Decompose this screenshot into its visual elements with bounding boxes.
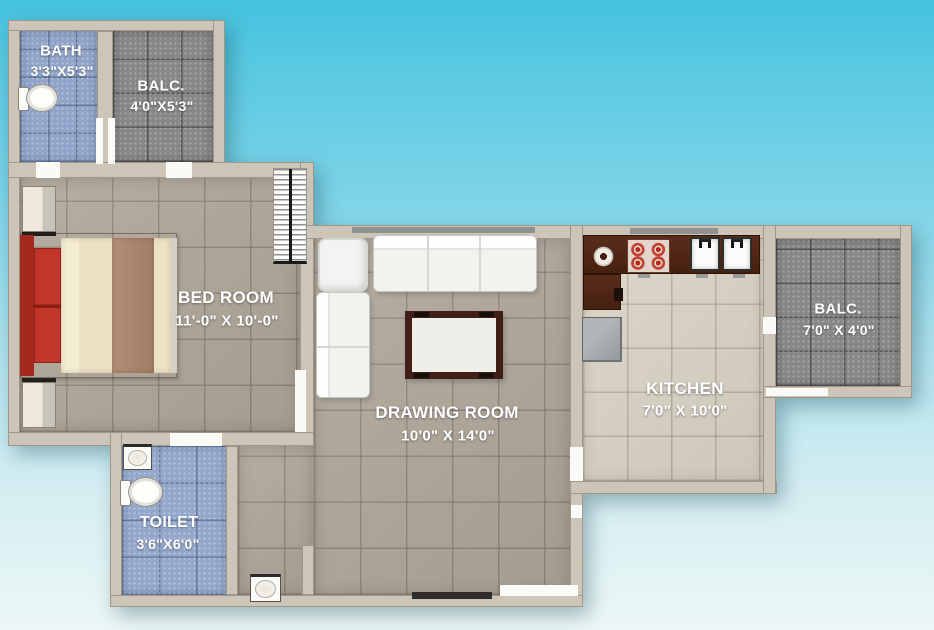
kitchen-door-opening <box>570 447 583 481</box>
balcony-top-door-leaf <box>108 118 115 164</box>
bed-blanket-stripe <box>112 238 154 373</box>
bath-door-opening <box>36 162 60 178</box>
toilet-dims: 3'6"X6'0" <box>136 536 199 552</box>
bath-toilet-icon <box>18 84 58 112</box>
loveseat-icon <box>316 292 370 398</box>
drawing-room-window <box>352 227 535 233</box>
drawing-room-side-window <box>571 505 582 518</box>
wall-bottom <box>110 595 583 607</box>
sofa-long-icon <box>373 235 537 292</box>
basin-bowl <box>255 580 276 598</box>
wall-bedroom-bottom <box>8 432 314 446</box>
balcony-right-rail-opening <box>766 388 828 396</box>
drawing-room-dims: 10'0" X 14'0" <box>401 428 495 445</box>
entrance-opening <box>500 585 578 596</box>
wall-kitchen-divider <box>570 225 583 607</box>
wall-kitchen-bottom <box>570 481 777 494</box>
bed-footboard <box>171 238 177 373</box>
bed-runner <box>34 248 61 363</box>
table-corner <box>414 373 429 378</box>
bedroom-dims: 11'-0" X 10'-0" <box>175 313 278 330</box>
kitchen-dims: 7'0" X 10'0" <box>642 403 727 420</box>
balcony-right-door-opening <box>763 317 776 334</box>
toilet-wc-icon <box>120 477 163 507</box>
toilet-bowl <box>26 84 58 112</box>
wall-top-left-block-right <box>213 20 225 178</box>
table-corner <box>479 312 494 317</box>
coffee-table-icon <box>405 311 503 379</box>
table-corner <box>414 312 429 317</box>
cabinet-handle <box>638 274 650 278</box>
bedroom-label: BED ROOM <box>178 288 274 308</box>
counter-notch <box>614 288 623 301</box>
washbasin-icon <box>123 444 152 470</box>
bedroom-door-opening <box>295 370 306 432</box>
counter-round-sink-icon <box>593 246 614 267</box>
passage-washbasin-icon <box>250 574 281 602</box>
wall-toilet-left <box>110 432 122 607</box>
balcony-top-dims: 4'0"X5'3" <box>130 98 193 114</box>
wardrobe-door-split <box>289 169 292 261</box>
kitchen-sink-icon <box>690 237 720 271</box>
wardrobe-icon <box>273 168 307 264</box>
wall-balcony-right-outer <box>900 225 912 398</box>
bath-label: BATH <box>40 43 82 60</box>
floor-plan-scene: BATH 3'3"X5'3" BALC. 4'0"X5'3" BED ROOM … <box>0 0 934 630</box>
nightstand-bottom-icon <box>22 378 56 428</box>
kitchen-label: KITCHEN <box>646 379 724 399</box>
entrance-door-icon <box>412 592 492 599</box>
refrigerator-icon <box>582 317 622 362</box>
balcony-top-door-opening <box>166 162 192 178</box>
bath-dims: 3'3"X5'3" <box>30 63 93 79</box>
bath-door-leaf <box>96 118 103 164</box>
balcony-right-label: BALC. <box>814 301 861 318</box>
wall-toilet-right <box>226 446 238 595</box>
wall-top-left-block-top <box>8 20 225 31</box>
kitchen-sink-icon <box>722 237 752 271</box>
floor-plan: BATH 3'3"X5'3" BALC. 4'0"X5'3" BED ROOM … <box>0 0 934 630</box>
double-bed-icon <box>20 233 177 378</box>
armchair-icon <box>318 238 368 292</box>
drawing-room-label: DRAWING ROOM <box>375 403 518 423</box>
toilet-bowl <box>128 477 163 507</box>
bed-headboard <box>20 235 34 376</box>
balcony-top-floor <box>113 31 213 162</box>
balcony-top-label: BALC. <box>137 78 184 95</box>
table-corner <box>479 373 494 378</box>
basin-bowl <box>128 450 147 466</box>
wall-passage-stub <box>302 545 314 595</box>
wall-kitchen-right <box>763 225 776 494</box>
gas-stove-icon <box>627 239 670 273</box>
cabinet-handle <box>696 274 708 278</box>
toilet-label: TOILET <box>140 514 198 532</box>
cabinet-handle <box>733 274 745 278</box>
toilet-door-opening <box>170 433 222 446</box>
nightstand-top-icon <box>22 186 56 236</box>
balcony-right-dims: 7'0" X 4'0" <box>803 322 875 338</box>
kitchen-window <box>630 228 718 234</box>
